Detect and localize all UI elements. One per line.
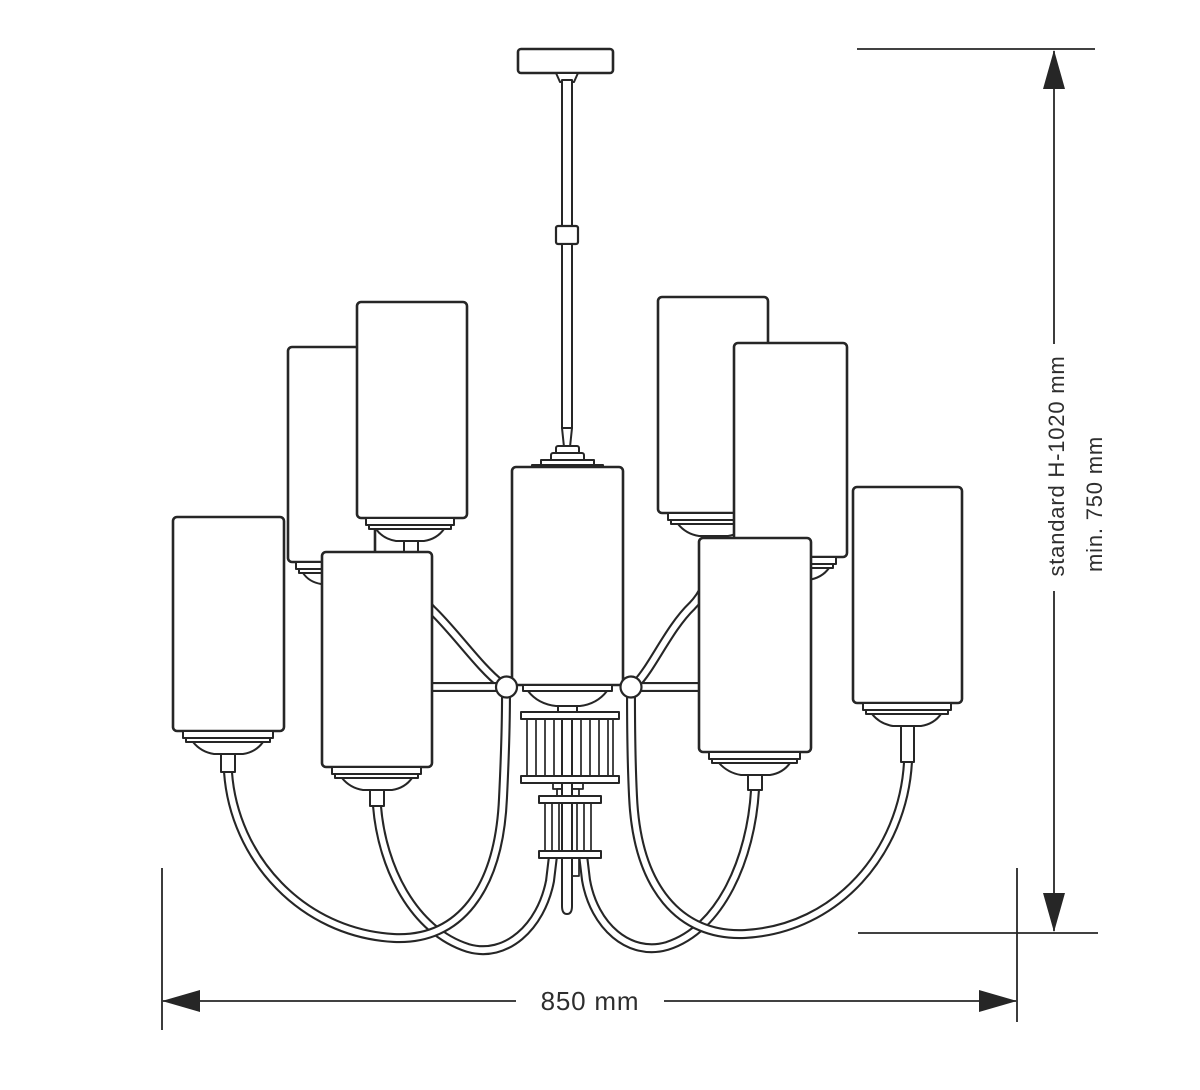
shade-flange <box>709 752 800 759</box>
chandelier-drawing <box>173 49 962 950</box>
chandelier-dimension-drawing: standard H-1020 mm min. 750 mm 850 mm <box>0 0 1200 1090</box>
cage-lower-top-plate <box>539 796 601 803</box>
shade-bowl <box>376 529 444 541</box>
shade-flange <box>183 731 273 738</box>
shade-stem <box>901 726 914 762</box>
rod-taper <box>562 428 572 447</box>
shade-cylinder <box>853 487 962 703</box>
shade-stem <box>748 775 762 790</box>
shade-bowl <box>528 691 607 706</box>
shade-central <box>512 467 623 714</box>
shade-lower-right-outer <box>853 487 962 762</box>
hanging-rod-upper <box>562 80 572 226</box>
hanging-rod-lower <box>562 244 572 428</box>
arm-lower-left-inner-line <box>377 806 553 950</box>
arrow-up-icon <box>1043 50 1065 89</box>
arrow-down-icon <box>1043 893 1065 932</box>
center-rod-bottom <box>562 712 572 914</box>
shade-bowl <box>872 714 941 726</box>
cage-lower-bottom-plate <box>539 851 601 858</box>
arrow-right-icon <box>979 990 1017 1012</box>
height-min-label: min. 750 mm <box>1082 436 1107 572</box>
height-standard-label: standard H-1020 mm <box>1044 355 1069 576</box>
shade-bowl <box>193 742 263 754</box>
shade-stem <box>221 754 235 772</box>
arm-lower-right-inner-line <box>583 790 755 948</box>
cage-upper-top-plate <box>521 712 619 719</box>
central-cage <box>521 712 619 914</box>
hub-ball-left <box>496 677 517 698</box>
shade-cylinder <box>512 467 623 685</box>
shade-cylinder <box>357 302 467 518</box>
shade-flange <box>863 703 951 710</box>
shade-cylinder <box>173 517 284 731</box>
shade-lower-left-outer <box>173 517 284 772</box>
chandelier-diagram-svg: standard H-1020 mm min. 750 mm 850 mm <box>0 0 1200 1090</box>
shade-lower-left-inner <box>322 552 432 806</box>
hub-ball-right <box>621 677 642 698</box>
ceiling-canopy <box>518 49 613 73</box>
suspension-column <box>518 49 613 471</box>
shade-flange <box>366 518 454 525</box>
shade-cylinder <box>734 343 847 557</box>
shade-stem <box>370 790 384 806</box>
cage-upper-bottom-plate <box>521 776 619 783</box>
arrow-left-icon <box>162 990 200 1012</box>
shade-lower-right-inner <box>699 538 811 790</box>
shade-cylinder <box>699 538 811 752</box>
shade-bowl <box>342 778 412 790</box>
shade-cylinder <box>322 552 432 767</box>
rod-coupler <box>556 226 578 244</box>
shade-flange <box>332 767 421 774</box>
shade-bowl <box>719 763 790 775</box>
width-label: 850 mm <box>541 986 640 1016</box>
